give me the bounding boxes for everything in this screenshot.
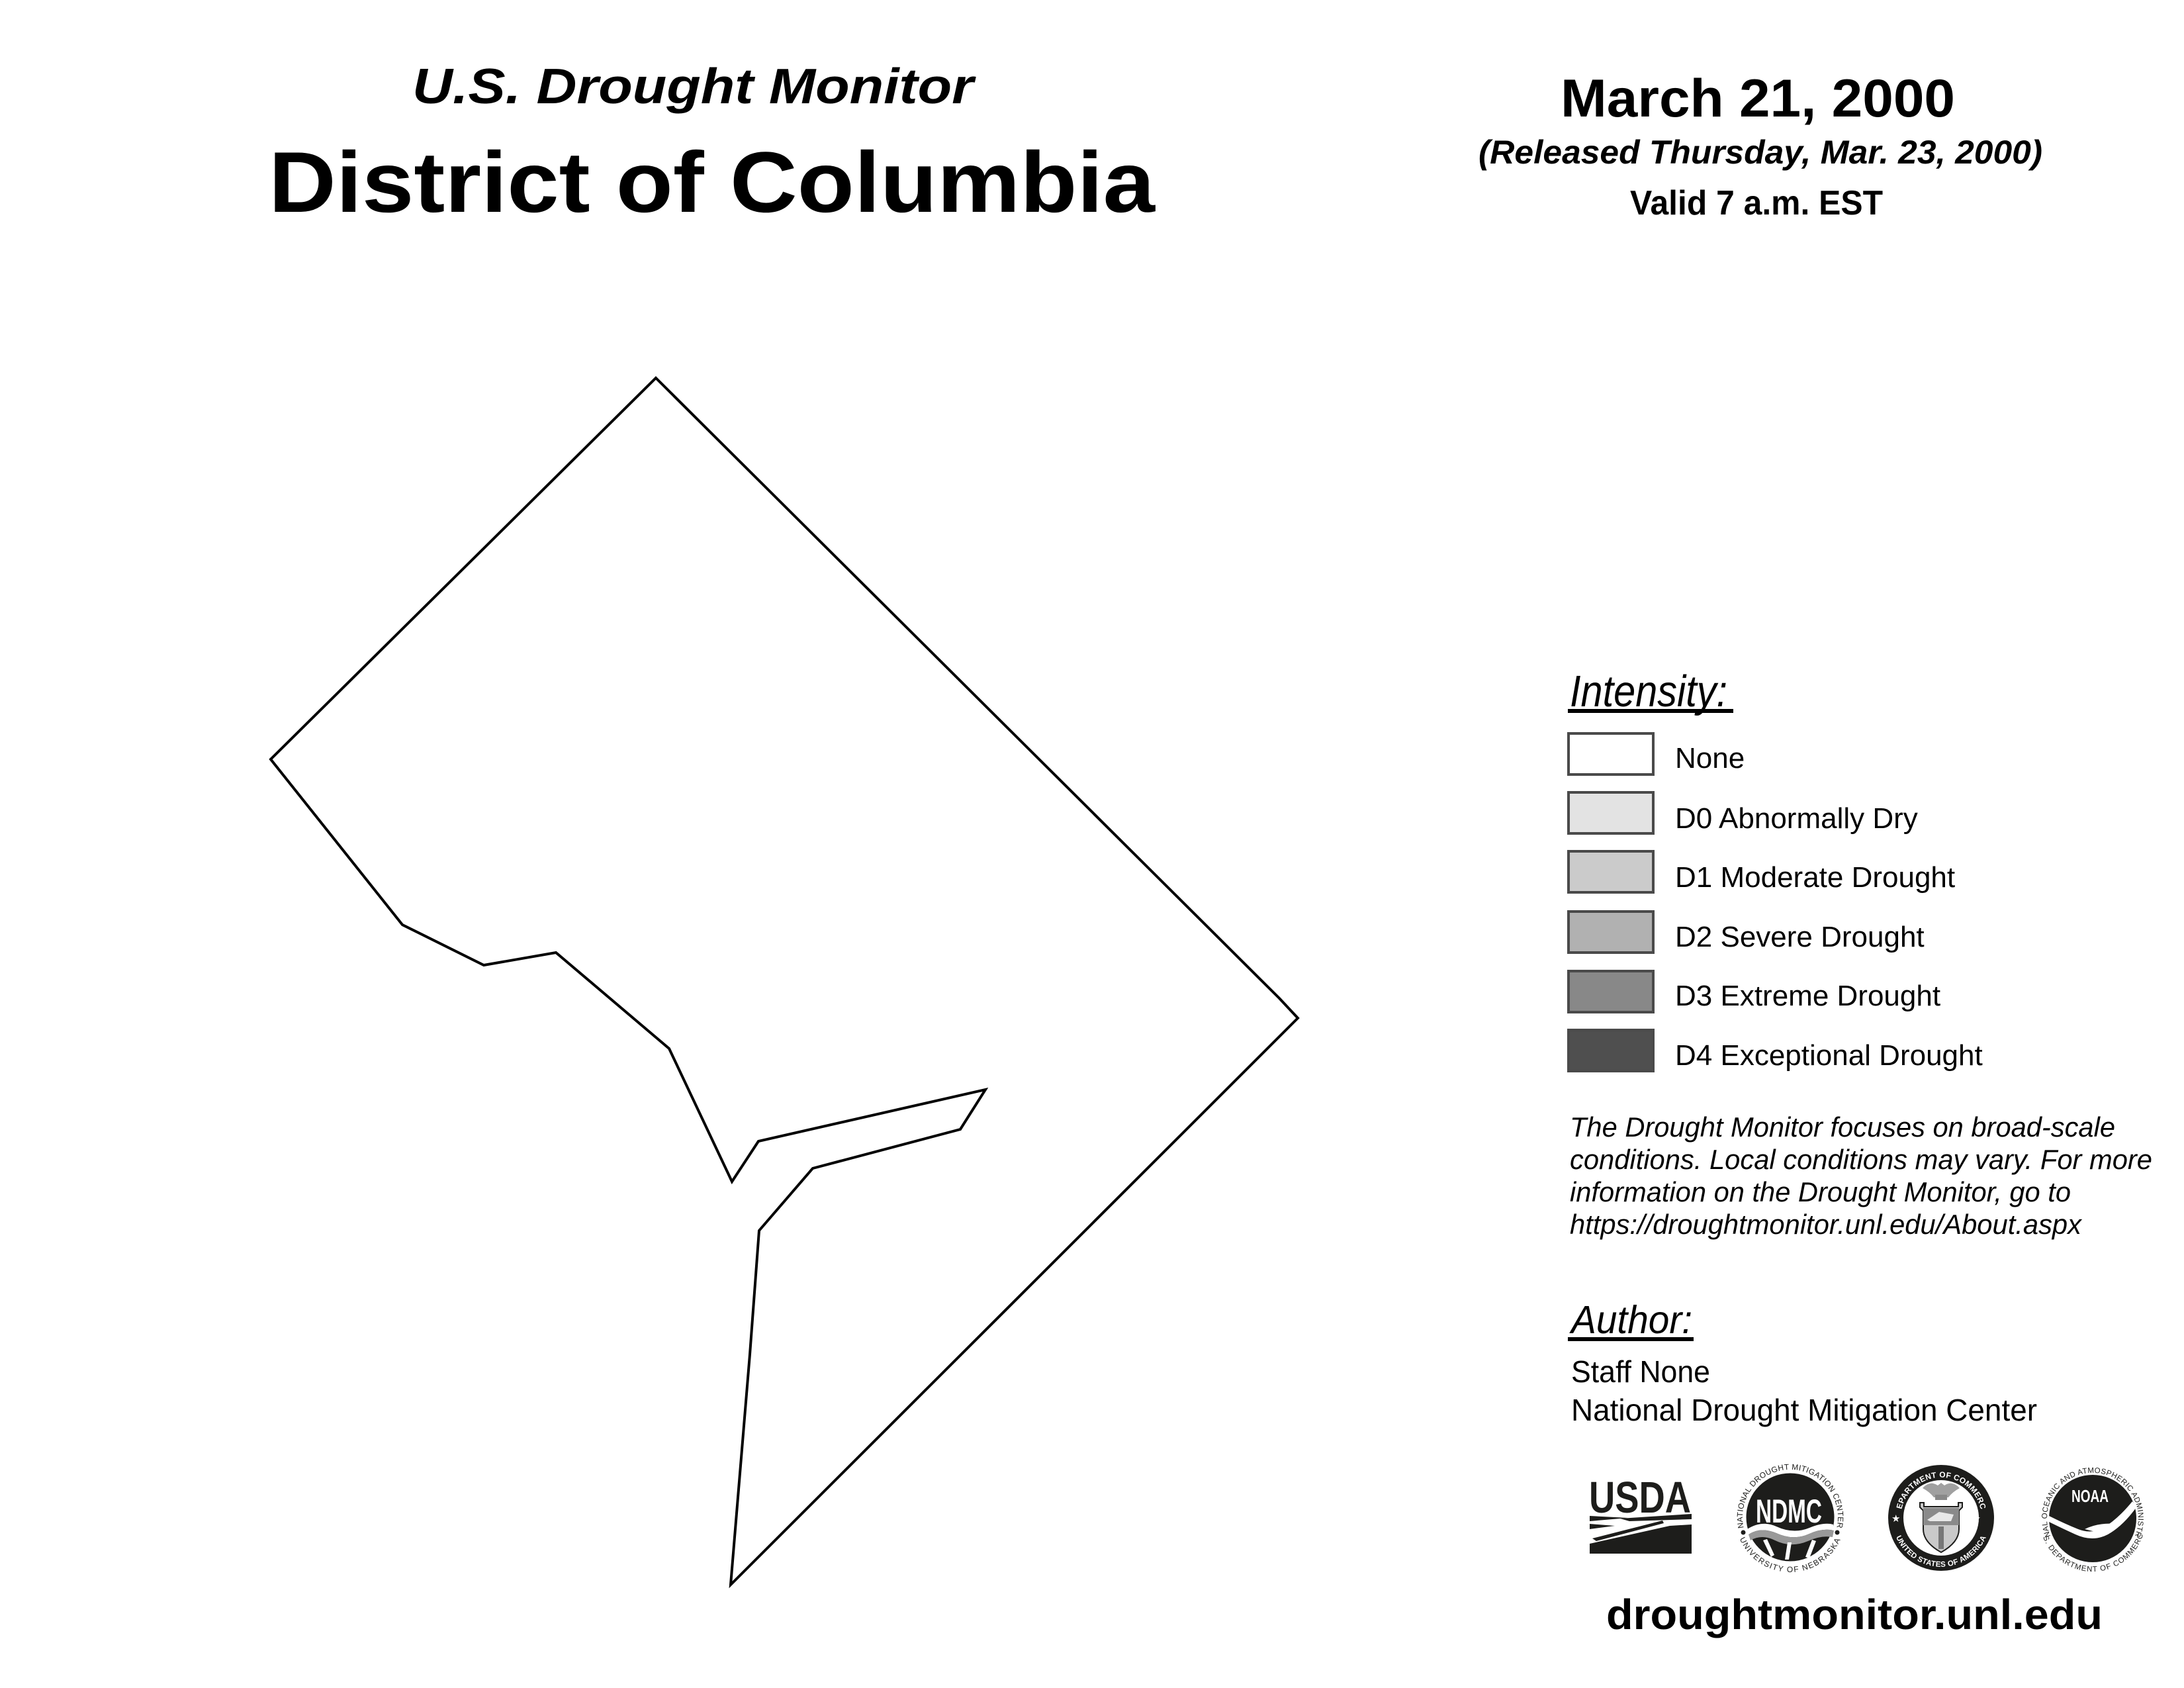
svg-text:D0 Abnormally Dry: D0 Abnormally Dry [1675,802,1918,835]
svg-text:Intensity:: Intensity: [1570,667,1727,716]
svg-text:D2 Severe Drought: D2 Severe Drought [1675,921,1925,953]
svg-text:droughtmonitor.unl.edu: droughtmonitor.unl.edu [1606,1591,2103,1638]
svg-text:U.S. Drought Monitor: U.S. Drought Monitor [412,58,976,114]
svg-text:D1 Moderate Drought: D1 Moderate Drought [1675,861,1955,894]
svg-text:Valid 7 a.m. EST: Valid 7 a.m. EST [1630,184,1883,222]
svg-text:National Drought Mitigation Ce: National Drought Mitigation Center [1571,1393,2037,1427]
svg-text:conditions. Local conditions m: conditions. Local conditions may vary. F… [1570,1144,2152,1175]
svg-text:★: ★ [1972,1513,1981,1524]
svg-text:Staff None: Staff None [1571,1354,1710,1389]
svg-text:March 21, 2000: March 21, 2000 [1561,69,1955,128]
svg-text:(Released Thursday, Mar. 23, 2: (Released Thursday, Mar. 23, 2000) [1479,134,2042,171]
svg-text:★: ★ [1891,1513,1900,1524]
svg-text:Author:: Author: [1569,1298,1692,1342]
svg-text:The Drought Monitor focuses on: The Drought Monitor focuses on broad-sca… [1570,1111,2115,1143]
svg-text:D4 Exceptional Drought: D4 Exceptional Drought [1675,1039,1983,1072]
svg-text:District of Columbia: District of Columbia [269,134,1156,230]
svg-text:D3 Extreme Drought: D3 Extreme Drought [1675,980,1940,1012]
svg-text:https://droughtmonitor.unl.edu: https://droughtmonitor.unl.edu/About.asp… [1570,1209,2083,1240]
svg-text:NOAA: NOAA [2071,1486,2109,1506]
svg-text:None: None [1675,742,1745,774]
svg-text:information on the Drought Mon: information on the Drought Monitor, go t… [1570,1176,2071,1207]
